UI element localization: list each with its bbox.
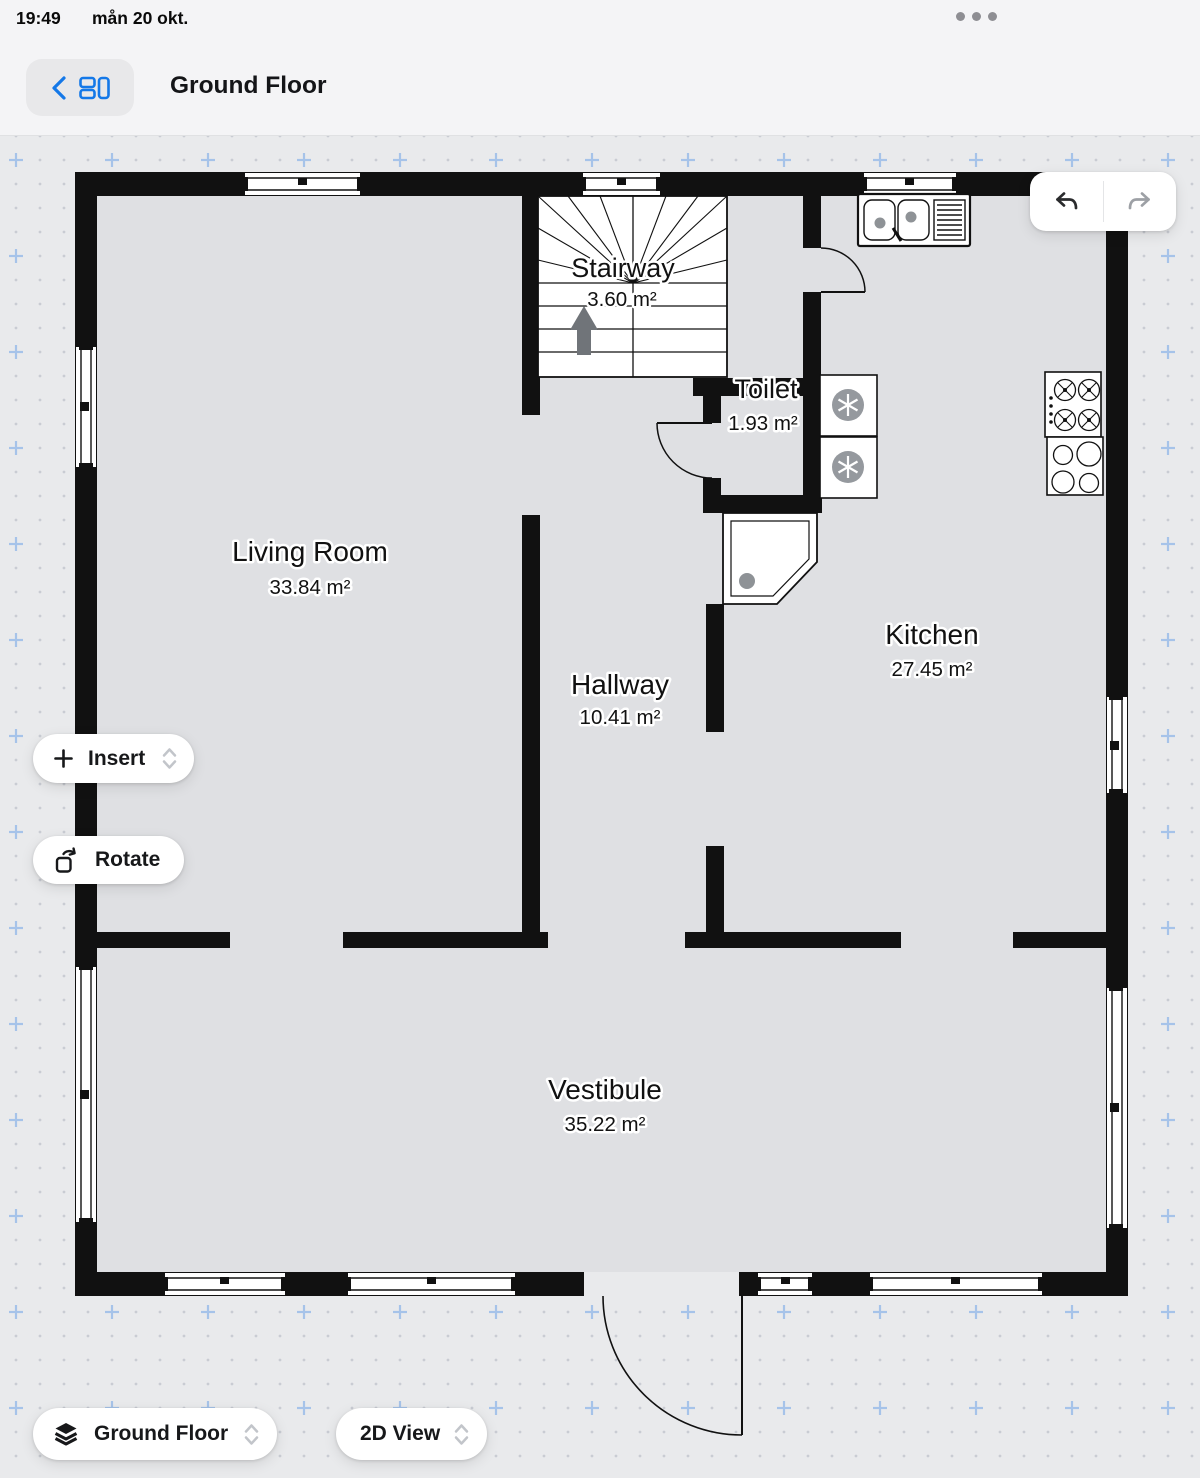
kitchen-sink[interactable] [858,194,970,246]
chevron-up-down-icon [160,745,179,772]
floor-selector[interactable]: Ground Floor [33,1408,277,1460]
svg-text:Kitchen: Kitchen [885,619,978,650]
plus-icon [54,749,73,768]
svg-text:Toilet: Toilet [734,374,798,404]
svg-text:Hallway: Hallway [571,669,669,700]
page-title: Ground Floor [170,72,327,100]
undo-icon [1051,187,1081,217]
fridge-freezer[interactable] [820,375,877,498]
view-selector-label: 2D View [360,1422,440,1446]
redo-button[interactable] [1104,172,1177,231]
svg-text:Living Room: Living Room [232,536,388,567]
insert-button[interactable]: Insert [33,734,194,783]
svg-text:27.45 m²: 27.45 m² [892,658,973,681]
svg-text:35.22 m²: 35.22 m² [565,1113,646,1136]
rotate-icon [52,845,82,875]
rotate-label: Rotate [95,848,160,872]
floor-selector-label: Ground Floor [94,1422,228,1446]
undo-redo-group [1030,172,1176,231]
status-date: mån 20 okt. [92,8,188,29]
chevron-up-down-icon [452,1421,471,1448]
floorplan-canvas[interactable]: Stairway 3.60 m² Toilet 1.93 m² Living R… [0,135,1200,1478]
rotate-button[interactable]: Rotate [33,836,184,884]
insert-label: Insert [88,747,145,771]
gas-hob[interactable] [1045,372,1101,437]
redo-icon [1125,187,1155,217]
view-selector[interactable]: 2D View [336,1408,487,1460]
svg-text:3.60 m²: 3.60 m² [587,288,657,311]
back-chevron-icon [50,76,67,100]
electric-hob[interactable] [1047,437,1103,495]
app-screen: Stairway 3.60 m² Toilet 1.93 m² Living R… [0,0,1200,1478]
svg-text:33.84 m²: 33.84 m² [270,576,351,599]
layers-icon [52,1420,80,1448]
svg-text:1.93 m²: 1.93 m² [728,412,798,435]
dashboard-icon [79,75,110,101]
chevron-up-down-icon [242,1421,261,1448]
undo-button[interactable] [1030,172,1103,231]
svg-text:Stairway: Stairway [571,253,675,283]
svg-text:Vestibule: Vestibule [548,1074,662,1105]
svg-text:10.41 m²: 10.41 m² [580,706,661,729]
back-button[interactable] [26,59,134,116]
status-time: 19:49 [16,8,61,29]
room-label-hallway[interactable]: Hallway 10.41 m² [571,669,669,729]
multitask-ellipsis-icon[interactable] [956,12,997,21]
floorplan-svg[interactable]: Stairway 3.60 m² Toilet 1.93 m² Living R… [0,135,1200,1478]
stairs[interactable] [538,196,727,377]
top-chrome: 19:49 mån 20 okt. Ground Floor [0,0,1200,136]
